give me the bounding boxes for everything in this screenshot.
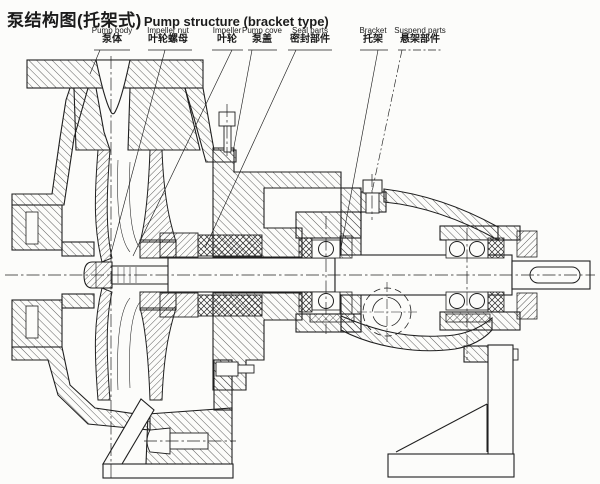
bearing-ball xyxy=(450,294,465,309)
leader-pump-cover xyxy=(233,50,277,152)
wear-ring-upper xyxy=(62,242,94,256)
bottom-joint-bolt-head xyxy=(216,362,238,376)
part-label-cjk: 密封部件 xyxy=(290,35,330,46)
bearing-cage xyxy=(299,238,312,258)
casing-wall-funnel-left xyxy=(74,88,110,150)
part-label-cjk: 叶轮 xyxy=(213,35,241,46)
part-label-suspend-parts: Suspend parts 悬架部件 xyxy=(394,27,446,46)
part-label-bracket: Bracket 托架 xyxy=(359,27,386,46)
part-label-impeller: Impeller 叶轮 xyxy=(213,27,241,46)
bearing-retainer-plate xyxy=(446,314,490,322)
casing-foot-base xyxy=(103,464,233,478)
part-label-seal-parts: Seal parts 密封部件 xyxy=(290,27,330,46)
bearing-end-cap xyxy=(517,231,537,257)
filler-plug-stem xyxy=(366,193,379,213)
cross-section-drawing xyxy=(0,0,600,484)
bearing-cage xyxy=(488,238,504,258)
bearing-ball xyxy=(470,294,485,309)
part-label-cjk: 叶轮螺母 xyxy=(147,35,189,46)
bearing-cage xyxy=(488,292,504,312)
filler-plug-head xyxy=(363,180,382,193)
bearing-ball xyxy=(470,242,485,257)
part-label-cjk: 托架 xyxy=(359,35,386,46)
part-label-pump-cover: Pump cove 泵盖 xyxy=(242,27,282,46)
top-joint-bolt-stem xyxy=(224,126,231,152)
bracket-bore-upper-right xyxy=(440,226,520,240)
bracket-bore-upper-left xyxy=(296,212,361,238)
wear-ring-lower xyxy=(62,294,94,308)
part-label-cjk: 悬架部件 xyxy=(394,35,446,46)
part-label-cjk: 泵盖 xyxy=(242,35,282,46)
bearing-cage xyxy=(299,292,312,312)
bearing-retainer-plate xyxy=(310,314,354,322)
bracket-foot-leg xyxy=(488,345,513,456)
impeller-front-shroud-lower xyxy=(95,288,112,400)
bearing-ball xyxy=(450,242,465,257)
bearing-end-cap xyxy=(517,293,537,319)
pump-structure-diagram: 泵结构图(托架式) Pump structure (bracket type) … xyxy=(0,0,600,484)
part-label-cjk: 泵体 xyxy=(92,35,132,46)
impeller-front-shroud-upper xyxy=(95,150,112,262)
impeller-rear-shroud-lower xyxy=(140,308,176,400)
part-label-impeller-nut: Impeller nut 叶轮螺母 xyxy=(147,27,189,46)
packing-rings-lower xyxy=(198,295,262,316)
bracket-foot-base xyxy=(388,454,514,477)
part-label-pump-body: Pump body 泵体 xyxy=(92,27,132,46)
flange-bolt-hole-upper xyxy=(26,212,38,244)
bracket-foot-gusset xyxy=(396,404,487,452)
bottom-joint-bolt-stem xyxy=(238,365,254,373)
packing-rings-upper xyxy=(198,235,262,256)
seal-gland-upper xyxy=(160,233,198,257)
leader-suspend-parts xyxy=(372,50,442,192)
seal-gland-lower xyxy=(160,293,198,317)
impeller-rear-shroud-upper xyxy=(140,150,176,242)
flange-bolt-hole-lower xyxy=(26,306,38,338)
